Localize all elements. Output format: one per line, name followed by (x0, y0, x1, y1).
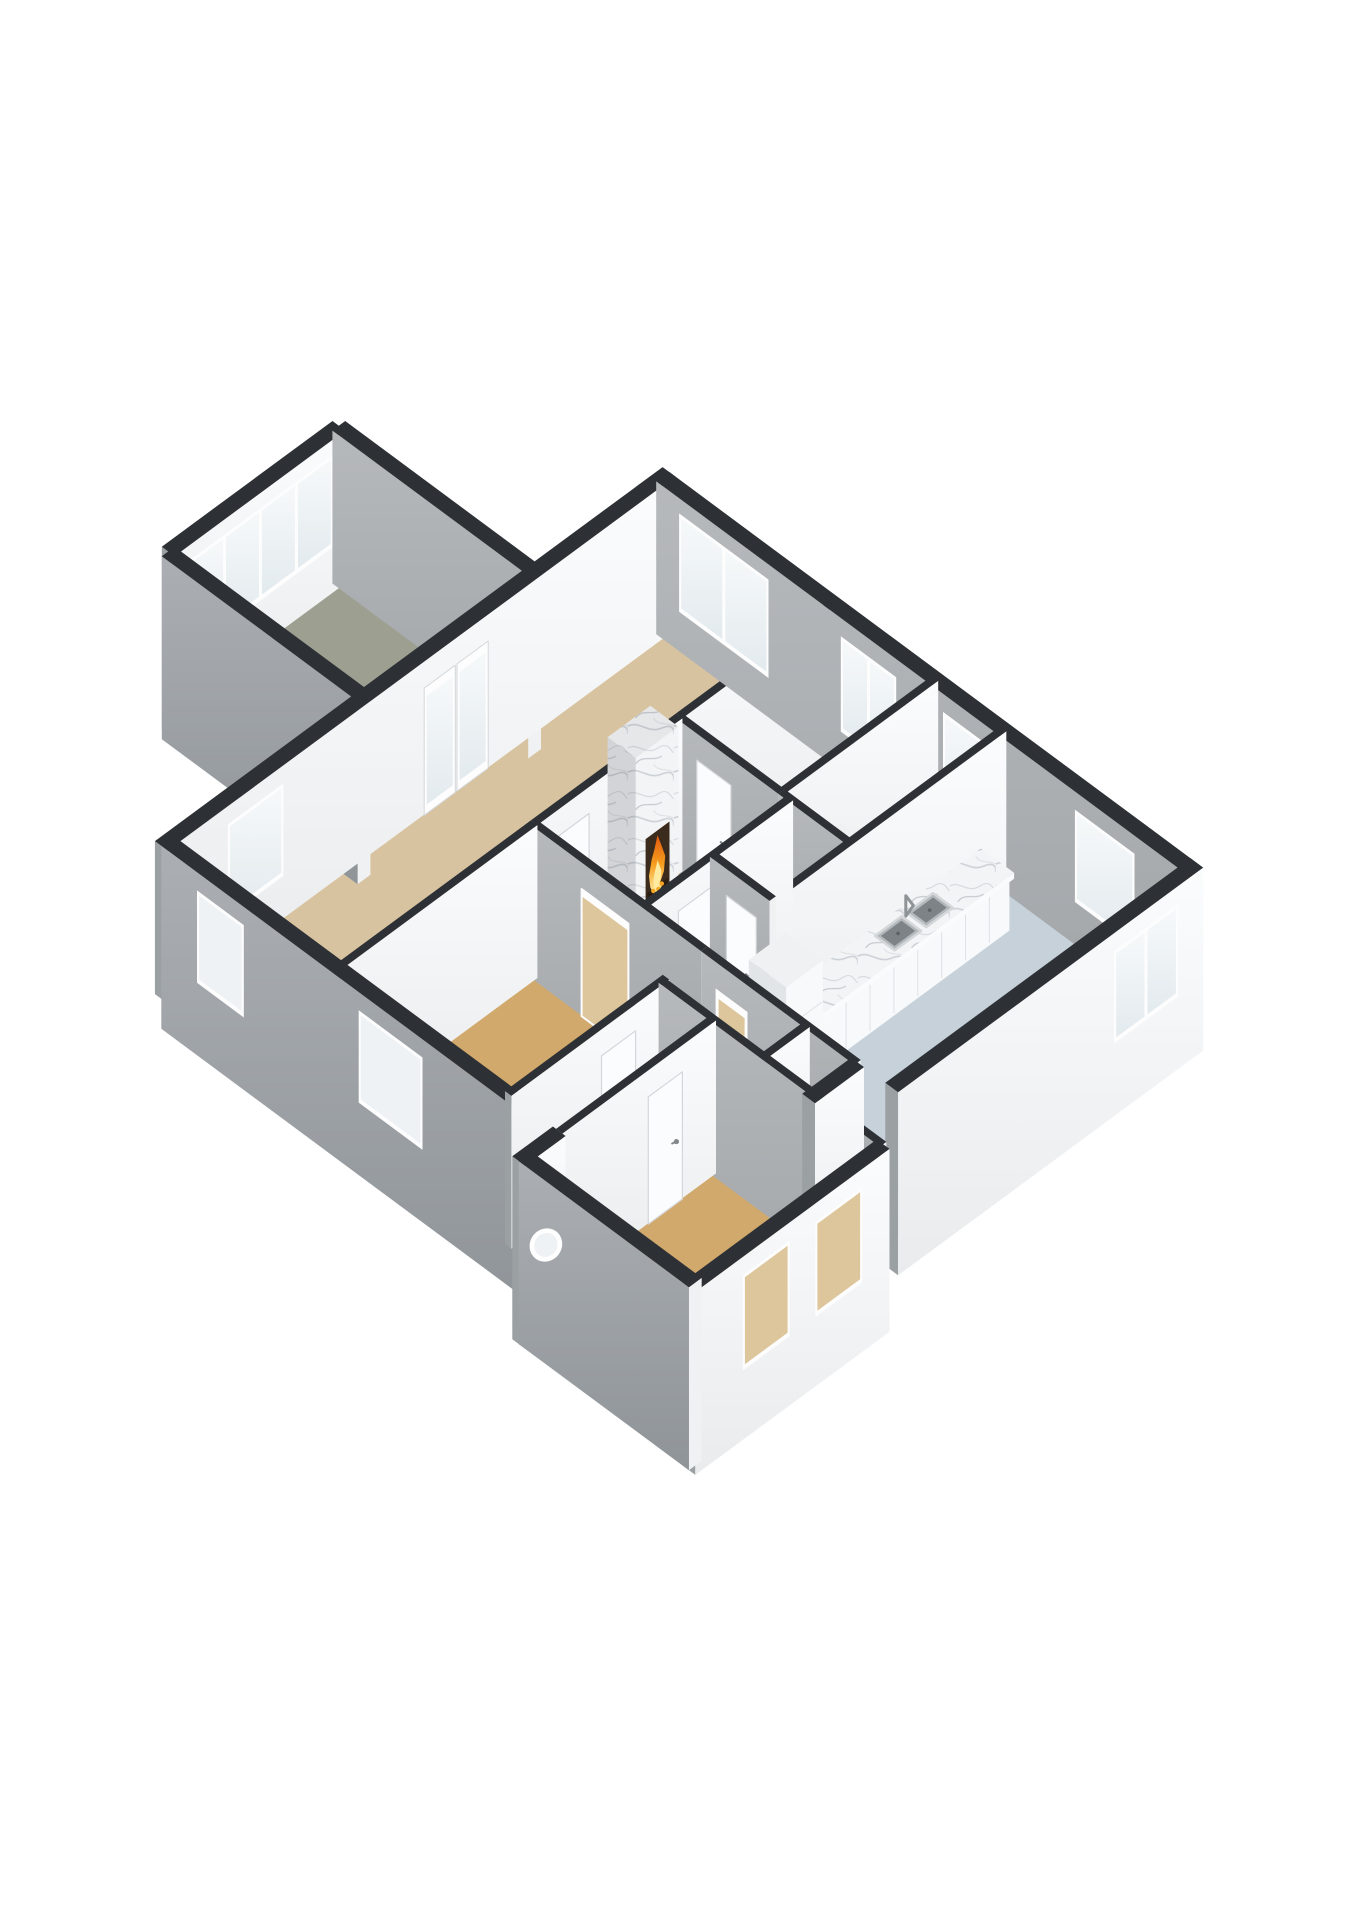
wall-end (505, 1091, 511, 1249)
sink-drain (928, 908, 932, 912)
interior-door (648, 1072, 682, 1224)
sink-drain (896, 932, 900, 936)
fire-ember (651, 889, 655, 893)
french-door-glass (460, 653, 486, 781)
floorplan-3d-render (0, 0, 1358, 1920)
fire-ember (660, 881, 664, 885)
french-door-glass (427, 677, 453, 805)
wall-end (689, 1278, 702, 1470)
floorplan-viewport (0, 0, 1358, 1920)
